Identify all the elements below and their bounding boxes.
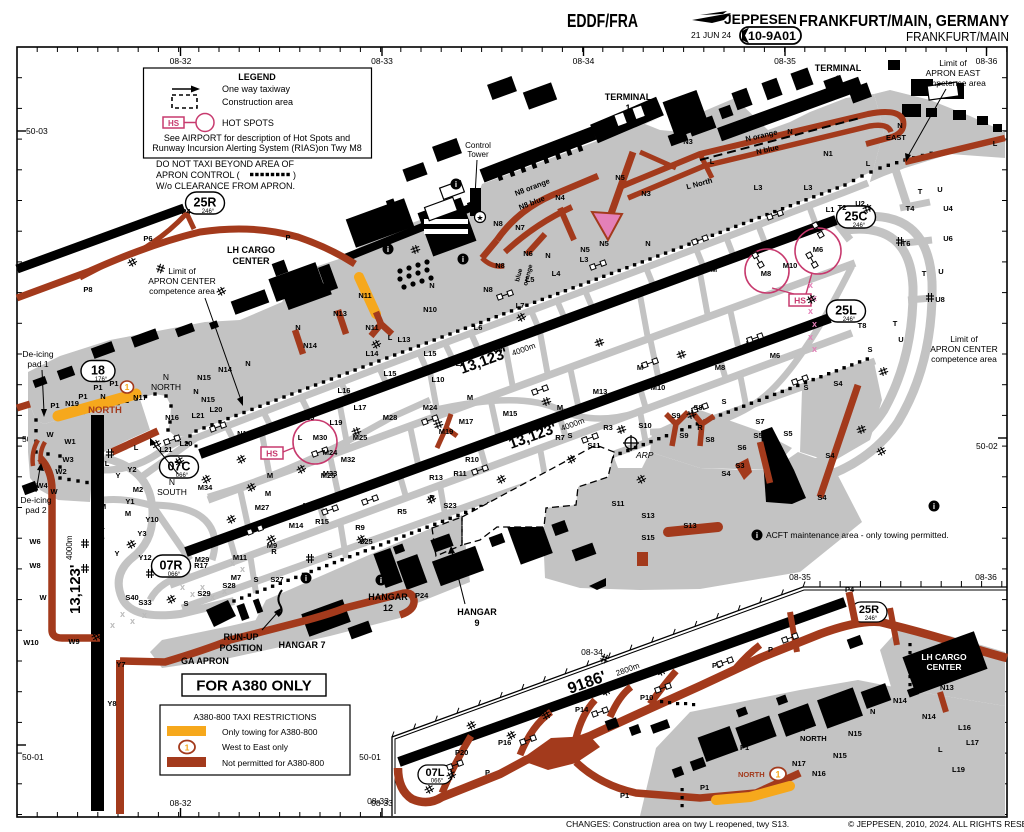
- svg-text:10-9A01: 10-9A01: [748, 31, 797, 43]
- svg-text:S15: S15: [641, 533, 654, 542]
- svg-text:HANGAR: HANGAR: [457, 607, 497, 617]
- svg-text:07R: 07R: [160, 559, 183, 573]
- svg-text:1: 1: [125, 382, 130, 392]
- svg-text:R: R: [271, 547, 277, 556]
- svg-text:S8: S8: [705, 435, 714, 444]
- svg-text:50-03: 50-03: [26, 126, 48, 136]
- svg-text:M: M: [711, 265, 717, 274]
- svg-text:L: L: [993, 139, 998, 148]
- svg-text:U8: U8: [935, 295, 945, 304]
- svg-text:50-01: 50-01: [22, 752, 44, 762]
- svg-text:T: T: [918, 187, 923, 196]
- svg-text:U: U: [938, 267, 943, 276]
- svg-text:N: N: [169, 477, 175, 487]
- svg-text:N8: N8: [483, 285, 493, 294]
- svg-text:P1: P1: [78, 392, 87, 401]
- svg-text:N: N: [645, 239, 650, 248]
- svg-text:M10: M10: [651, 383, 666, 392]
- svg-text:50-02: 50-02: [976, 441, 998, 451]
- svg-text:L: L: [298, 433, 303, 442]
- svg-text:U: U: [898, 335, 903, 344]
- svg-text:N5: N5: [599, 239, 609, 248]
- svg-text:N8: N8: [495, 261, 505, 270]
- svg-text:i: i: [462, 255, 464, 264]
- svg-text:S4: S4: [817, 493, 827, 502]
- svg-text:L13: L13: [398, 335, 411, 344]
- svg-text:18: 18: [91, 364, 105, 378]
- svg-text:066°: 066°: [168, 572, 181, 578]
- svg-text:S: S: [721, 397, 726, 406]
- svg-text:08-32: 08-32: [170, 56, 192, 66]
- svg-text:N15: N15: [201, 395, 215, 404]
- svg-text:POSITION: POSITION: [219, 643, 262, 653]
- svg-text:NORTH: NORTH: [88, 405, 122, 416]
- svg-text:L15: L15: [384, 369, 397, 378]
- svg-text:x: x: [142, 610, 147, 620]
- svg-text:246°: 246°: [843, 317, 856, 323]
- svg-text:L17: L17: [966, 738, 979, 747]
- svg-text:4000m: 4000m: [65, 535, 74, 560]
- svg-text:S11: S11: [588, 441, 601, 450]
- svg-text:pad 1: pad 1: [27, 359, 49, 369]
- svg-text:L16: L16: [338, 386, 351, 395]
- svg-text:M14: M14: [289, 521, 304, 530]
- svg-text:See AIRPORT for description of: See AIRPORT for description of Hot Spots…: [164, 133, 350, 143]
- svg-text:066°: 066°: [431, 779, 444, 785]
- svg-text:T6: T6: [902, 239, 911, 248]
- svg-text:W: W: [39, 593, 47, 602]
- svg-text:S: S: [567, 431, 572, 440]
- svg-text:L3: L3: [804, 183, 813, 192]
- svg-text:P1: P1: [109, 379, 118, 388]
- svg-text:M10: M10: [783, 261, 798, 270]
- svg-text:L: L: [134, 443, 139, 452]
- svg-text:N15: N15: [197, 373, 211, 382]
- svg-text:1: 1: [775, 770, 780, 780]
- svg-text:competence area: competence area: [920, 78, 986, 88]
- svg-text:9: 9: [474, 618, 479, 628]
- svg-text:N14: N14: [218, 365, 233, 374]
- svg-text:S10: S10: [638, 421, 651, 430]
- svg-text:L4: L4: [552, 269, 562, 278]
- svg-text:W: W: [46, 430, 54, 439]
- svg-text:x: x: [110, 620, 115, 630]
- svg-text:U4: U4: [943, 204, 953, 213]
- svg-text:1: 1: [625, 103, 630, 113]
- svg-text:N4: N4: [555, 193, 565, 202]
- svg-text:LH CARGO: LH CARGO: [227, 245, 275, 255]
- svg-text:246°: 246°: [865, 616, 878, 622]
- svg-text:x: x: [808, 280, 813, 290]
- svg-text:i: i: [756, 531, 758, 540]
- svg-text:W9: W9: [68, 637, 79, 646]
- svg-text:HANGAR: HANGAR: [368, 592, 408, 602]
- svg-text:07C: 07C: [168, 460, 191, 474]
- svg-text:N: N: [557, 143, 562, 152]
- svg-text:Y3: Y3: [137, 529, 146, 538]
- svg-text:West to East only: West to East only: [222, 742, 289, 752]
- svg-text:competence area: competence area: [149, 286, 215, 296]
- svg-text:Not permitted for A380-800: Not permitted for A380-800: [222, 758, 324, 768]
- svg-text:P4: P4: [181, 207, 191, 216]
- svg-text:N11: N11: [365, 323, 378, 332]
- svg-text:RUN-UP: RUN-UP: [224, 632, 259, 642]
- svg-text:M27: M27: [255, 503, 270, 512]
- svg-text:Y2: Y2: [127, 465, 136, 474]
- svg-text:S8: S8: [693, 403, 702, 412]
- svg-text:Y10: Y10: [145, 515, 158, 524]
- svg-text:N13: N13: [333, 309, 347, 318]
- svg-text:© JEPPESEN, 2010, 2024. ALL RI: © JEPPESEN, 2010, 2024. ALL RIGHTS RESER…: [848, 819, 1024, 829]
- svg-text:S13: S13: [683, 521, 696, 530]
- svg-text:M19: M19: [439, 427, 454, 436]
- svg-text:L20: L20: [210, 405, 223, 414]
- svg-text:FRANKFURT/MAIN, GERMANY: FRANKFURT/MAIN, GERMANY: [799, 13, 1009, 30]
- svg-text:x: x: [180, 582, 185, 592]
- svg-text:08-32: 08-32: [170, 798, 192, 808]
- svg-text:S23: S23: [443, 501, 456, 510]
- svg-text:R17: R17: [194, 561, 208, 570]
- svg-text:Tower: Tower: [467, 150, 489, 159]
- svg-text:P16: P16: [498, 738, 511, 747]
- svg-text:08-36: 08-36: [976, 56, 998, 66]
- svg-text:x: x: [808, 306, 813, 316]
- svg-text:L14: L14: [366, 349, 380, 358]
- svg-text:T: T: [893, 319, 898, 328]
- svg-text:Y1: Y1: [125, 497, 134, 506]
- svg-text:R7: R7: [555, 433, 565, 442]
- svg-text:HS: HS: [168, 119, 180, 128]
- svg-text:U6: U6: [943, 234, 953, 243]
- svg-text:N: N: [193, 387, 198, 396]
- svg-text:N: N: [787, 127, 792, 136]
- svg-text:N: N: [545, 251, 550, 260]
- svg-text:M30: M30: [313, 433, 328, 442]
- svg-text:R: R: [697, 423, 703, 432]
- svg-text:R11: R11: [453, 469, 466, 478]
- svg-text:M6: M6: [770, 351, 780, 360]
- svg-text:Only towing for A380-800: Only towing for A380-800: [222, 727, 318, 737]
- svg-text:N: N: [245, 359, 250, 368]
- svg-text:ACFT maintenance area - only t: ACFT maintenance area - only towing perm…: [766, 530, 949, 540]
- svg-text:M6: M6: [813, 245, 823, 254]
- svg-text:S5: S5: [783, 429, 792, 438]
- svg-text:M24: M24: [323, 448, 338, 457]
- svg-text:N: N: [836, 716, 841, 725]
- svg-text:W8: W8: [29, 561, 40, 570]
- svg-text:NORTH: NORTH: [151, 382, 181, 392]
- svg-text:M25: M25: [353, 433, 368, 442]
- svg-text:P24: P24: [415, 591, 429, 600]
- svg-text:S: S: [803, 383, 808, 392]
- svg-text:M28: M28: [383, 413, 398, 422]
- svg-text:P4: P4: [845, 585, 855, 594]
- svg-text:TERMINAL: TERMINAL: [815, 63, 862, 73]
- svg-text:N: N: [163, 372, 169, 382]
- svg-text:M13: M13: [593, 387, 608, 396]
- svg-text:N11: N11: [358, 291, 371, 300]
- svg-text:APRON CENTER: APRON CENTER: [148, 276, 216, 286]
- svg-text:CHANGES: Construction area on: CHANGES: Construction area on twy L reop…: [566, 819, 789, 829]
- svg-text:25R: 25R: [859, 604, 879, 616]
- svg-text:Limit of: Limit of: [939, 58, 967, 68]
- svg-text:08-33: 08-33: [367, 796, 389, 806]
- svg-text:08-35: 08-35: [789, 572, 811, 582]
- svg-text:P8: P8: [83, 285, 92, 294]
- svg-text:W3: W3: [62, 455, 73, 464]
- svg-text:NORTH: NORTH: [738, 770, 765, 779]
- svg-text:S29: S29: [197, 589, 210, 598]
- svg-text:FRANKFURT/MAIN: FRANKFURT/MAIN: [906, 29, 1009, 44]
- svg-text:Y7: Y7: [116, 660, 125, 669]
- svg-text:DO NOT TAXI BEYOND AREA OF: DO NOT TAXI BEYOND AREA OF: [156, 159, 295, 169]
- svg-text:T2: T2: [838, 203, 847, 212]
- svg-text:L: L: [938, 745, 943, 754]
- svg-text:N: N: [429, 281, 434, 290]
- svg-text:De-icing: De-icing: [20, 495, 51, 505]
- svg-text:S11: S11: [612, 499, 625, 508]
- svg-text:M25: M25: [321, 471, 336, 480]
- svg-text:M: M: [557, 403, 563, 412]
- svg-text:P6: P6: [143, 234, 152, 243]
- svg-text:P14: P14: [575, 705, 589, 714]
- svg-text:M: M: [267, 471, 273, 480]
- svg-text:CENTER: CENTER: [232, 256, 270, 266]
- svg-text:S5: S5: [753, 431, 762, 440]
- svg-text:N5: N5: [580, 245, 590, 254]
- svg-text:HS: HS: [794, 296, 806, 306]
- svg-text:x: x: [190, 589, 195, 599]
- svg-text:M21: M21: [493, 434, 508, 443]
- svg-text:L7: L7: [516, 301, 525, 310]
- svg-text:L19: L19: [330, 418, 343, 427]
- svg-text:Y4: Y4: [95, 523, 105, 532]
- svg-text:P1: P1: [50, 401, 59, 410]
- svg-text:CENTER: CENTER: [927, 662, 962, 672]
- svg-text:LH CARGO: LH CARGO: [921, 652, 967, 662]
- svg-text:M: M: [637, 363, 643, 372]
- svg-text:L8: L8: [494, 345, 503, 354]
- svg-text:L16: L16: [958, 723, 971, 732]
- svg-text:N8: N8: [493, 219, 503, 228]
- svg-text:M15: M15: [503, 409, 518, 418]
- svg-text:L1: L1: [826, 205, 835, 214]
- svg-text:M32: M32: [341, 455, 356, 464]
- svg-text:N16: N16: [165, 413, 179, 422]
- svg-text:M8: M8: [761, 269, 771, 278]
- svg-text:i: i: [933, 502, 935, 511]
- svg-text:S6: S6: [737, 443, 746, 452]
- svg-text:M23: M23: [529, 423, 544, 432]
- svg-text:A380-800 TAXI RESTRICTIONS: A380-800 TAXI RESTRICTIONS: [194, 712, 317, 722]
- svg-text:P1: P1: [620, 791, 629, 800]
- svg-text:S: S: [183, 599, 188, 608]
- svg-text:N14: N14: [922, 712, 937, 721]
- svg-text:NORTH: NORTH: [800, 734, 827, 743]
- svg-text:N3: N3: [641, 189, 651, 198]
- svg-text:L: L: [388, 333, 393, 342]
- svg-text:pad 2: pad 2: [25, 505, 47, 515]
- svg-text:N14: N14: [303, 341, 318, 350]
- svg-text:N10: N10: [423, 305, 437, 314]
- svg-text:R9: R9: [355, 523, 365, 532]
- svg-text:S: S: [327, 551, 332, 560]
- svg-text:P1: P1: [700, 783, 709, 792]
- svg-text:S9: S9: [671, 411, 680, 420]
- svg-text:APRON EAST: APRON EAST: [926, 68, 981, 78]
- svg-text:2: 2: [835, 74, 840, 84]
- svg-text:De-icing: De-icing: [22, 349, 53, 359]
- svg-text:25L: 25L: [835, 304, 857, 318]
- svg-text:M: M: [125, 509, 131, 518]
- svg-text:Control: Control: [465, 141, 491, 150]
- svg-text:S40: S40: [125, 593, 138, 602]
- svg-text:Limit of: Limit of: [168, 266, 196, 276]
- svg-text:APRON CENTER: APRON CENTER: [930, 344, 998, 354]
- svg-text:S: S: [867, 345, 872, 354]
- svg-text:x: x: [808, 332, 813, 342]
- svg-text:N7: N7: [515, 223, 525, 232]
- svg-text:08-33: 08-33: [371, 56, 393, 66]
- svg-text:T4: T4: [906, 204, 916, 213]
- svg-text:T: T: [922, 269, 927, 278]
- svg-text:08-34: 08-34: [573, 56, 595, 66]
- svg-text:N: N: [100, 392, 105, 401]
- svg-text:x: x: [120, 609, 125, 619]
- svg-text:W: W: [50, 487, 58, 496]
- svg-text:M24: M24: [423, 403, 438, 412]
- svg-text:M: M: [100, 502, 106, 511]
- svg-text:246°: 246°: [853, 223, 866, 229]
- svg-text:W10: W10: [23, 638, 38, 647]
- svg-text:P20: P20: [455, 748, 468, 757]
- svg-text:HOT SPOTS: HOT SPOTS: [222, 118, 274, 128]
- svg-text:Y8: Y8: [107, 699, 116, 708]
- svg-text:13,123': 13,123': [67, 565, 84, 614]
- svg-text:L6: L6: [474, 323, 483, 332]
- svg-text:ARP: ARP: [635, 450, 654, 460]
- svg-text:P1: P1: [740, 743, 749, 752]
- svg-text:W1: W1: [64, 437, 75, 446]
- svg-text:M27: M27: [303, 501, 318, 510]
- svg-text:R: R: [429, 493, 435, 502]
- svg-text:i: i: [380, 576, 382, 585]
- svg-text:JEPPESEN: JEPPESEN: [724, 11, 797, 27]
- svg-text:N: N: [295, 323, 300, 332]
- svg-text:P10: P10: [640, 693, 653, 702]
- svg-text:N17: N17: [133, 393, 147, 402]
- svg-text:L21: L21: [192, 411, 205, 420]
- svg-text:TERMINAL: TERMINAL: [605, 92, 652, 102]
- svg-text:N16: N16: [812, 769, 826, 778]
- svg-text:L9: L9: [456, 359, 465, 368]
- svg-text:S4: S4: [833, 379, 843, 388]
- svg-text:L20: L20: [180, 439, 193, 448]
- svg-text:L10: L10: [432, 375, 445, 384]
- svg-text:L21: L21: [160, 445, 173, 454]
- svg-text:S25: S25: [359, 537, 372, 546]
- svg-text:i: i: [455, 180, 457, 189]
- svg-text:SOUTH: SOUTH: [157, 487, 187, 497]
- svg-text:x: x: [210, 592, 215, 602]
- svg-text:08-36: 08-36: [975, 572, 997, 582]
- svg-text:L19: L19: [952, 765, 965, 774]
- svg-text:L3: L3: [580, 255, 589, 264]
- svg-text:Runway Incursion Alerting Syst: Runway Incursion Alerting System (RIAS)o…: [152, 143, 361, 153]
- svg-text:N: N: [737, 123, 742, 132]
- svg-text:U: U: [937, 185, 942, 194]
- svg-text:x: x: [130, 616, 135, 626]
- svg-text:N1: N1: [823, 149, 833, 158]
- svg-text:Y: Y: [114, 549, 119, 558]
- svg-text:N6: N6: [523, 249, 533, 258]
- svg-text:L17: L17: [354, 403, 367, 412]
- svg-text:S13: S13: [641, 511, 654, 520]
- svg-text:W6: W6: [29, 537, 40, 546]
- svg-text:L: L: [866, 159, 871, 168]
- svg-text:P: P: [485, 768, 490, 777]
- svg-text:Y12: Y12: [138, 553, 151, 562]
- svg-text:21 JUN 24: 21 JUN 24: [691, 30, 731, 40]
- svg-text:S5: S5: [769, 439, 778, 448]
- svg-text:i: i: [387, 245, 389, 254]
- svg-text:S4: S4: [721, 469, 731, 478]
- svg-text:APRON CONTROL (: APRON CONTROL (: [156, 170, 240, 180]
- svg-text:LEGEND: LEGEND: [238, 72, 276, 82]
- svg-text:M: M: [467, 393, 473, 402]
- svg-text:M: M: [265, 489, 271, 498]
- svg-text:T8: T8: [858, 321, 867, 330]
- svg-text:Y6: Y6: [95, 533, 104, 542]
- svg-text:50-01: 50-01: [359, 752, 381, 762]
- svg-text:W4: W4: [36, 481, 48, 490]
- svg-text:M11: M11: [233, 553, 247, 562]
- svg-text:P1: P1: [93, 383, 102, 392]
- svg-text:R3: R3: [603, 423, 613, 432]
- svg-text:S33: S33: [138, 598, 151, 607]
- svg-text:N16: N16: [237, 429, 251, 438]
- svg-text:L: L: [105, 459, 110, 468]
- svg-text:Limit of: Limit of: [950, 334, 978, 344]
- svg-text:L3: L3: [754, 183, 763, 192]
- svg-text:08-34: 08-34: [581, 647, 603, 657]
- svg-text:One way taxiway: One way taxiway: [222, 84, 291, 94]
- svg-text:S3: S3: [735, 461, 744, 470]
- svg-text:P: P: [768, 645, 773, 654]
- svg-text:R13: R13: [429, 473, 443, 482]
- svg-text:07L: 07L: [426, 767, 445, 779]
- svg-text:M17: M17: [459, 417, 474, 426]
- svg-text:U2: U2: [855, 199, 865, 208]
- svg-text:L: L: [710, 157, 715, 166]
- svg-text:GA APRON: GA APRON: [181, 656, 229, 666]
- svg-text:S4: S4: [825, 451, 835, 460]
- svg-text:M2: M2: [133, 485, 143, 494]
- svg-text:S7: S7: [755, 417, 764, 426]
- svg-text:N3: N3: [683, 137, 693, 146]
- svg-text:M8: M8: [715, 363, 725, 372]
- svg-text:competence area: competence area: [931, 354, 997, 364]
- svg-text:S9: S9: [679, 431, 688, 440]
- svg-text:EDDF/FRA: EDDF/FRA: [567, 11, 638, 31]
- svg-text:25R: 25R: [194, 196, 217, 210]
- svg-text:N14: N14: [893, 696, 908, 705]
- svg-text:08-35: 08-35: [774, 56, 796, 66]
- svg-text:): ): [293, 170, 296, 180]
- svg-text:Construction area: Construction area: [222, 97, 293, 107]
- svg-text:N13: N13: [940, 683, 954, 692]
- svg-text:N: N: [800, 724, 805, 733]
